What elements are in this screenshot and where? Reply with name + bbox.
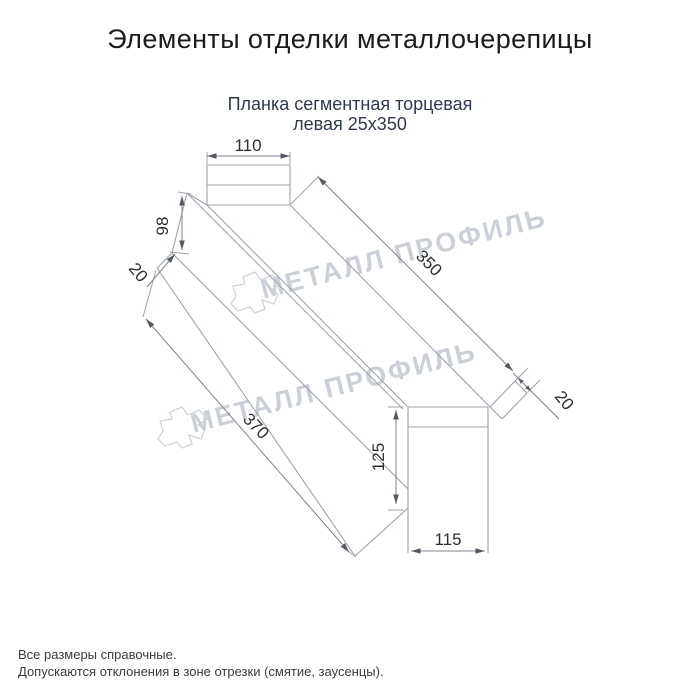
dim-left-height-label: 98: [153, 217, 172, 236]
watermark-bottom: МЕТАЛЛ ПРОФИЛЬ: [158, 336, 480, 448]
footer-note-2: Допускаются отклонения в зоне отрезки (с…: [18, 663, 384, 680]
dim-right-flange-label: 20: [551, 387, 578, 414]
dim-top-width-label: 110: [234, 136, 261, 155]
extension-lines: [143, 152, 540, 557]
watermark-top: МЕТАЛЛ ПРОФИЛЬ: [231, 202, 550, 313]
dimension-labels: 110 98 20 350 20 370 125 115: [125, 136, 578, 549]
technical-drawing: МЕТАЛЛ ПРОФИЛЬ МЕТАЛЛ ПРОФИЛЬ: [0, 0, 700, 700]
dim-right-width-label: 115: [434, 530, 461, 549]
page: { "header": { "title": "Элементы отделки…: [0, 0, 700, 700]
dim-right-height-label: 125: [369, 443, 388, 471]
footer-notes: Все размеры справочные. Допускаются откл…: [18, 646, 384, 680]
watermark-text: МЕТАЛЛ ПРОФИЛЬ: [257, 202, 550, 305]
watermark-text: МЕТАЛЛ ПРОФИЛЬ: [187, 336, 480, 439]
footer-note-1: Все размеры справочные.: [18, 646, 384, 663]
dim-left-flange-label: 20: [125, 259, 152, 286]
